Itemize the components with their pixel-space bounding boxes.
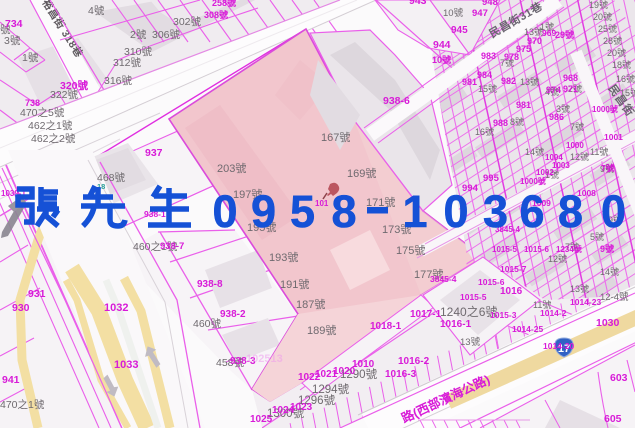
- svg-text:103680: 103680: [403, 186, 627, 237]
- svg-text:0958: 0958: [213, 186, 357, 237]
